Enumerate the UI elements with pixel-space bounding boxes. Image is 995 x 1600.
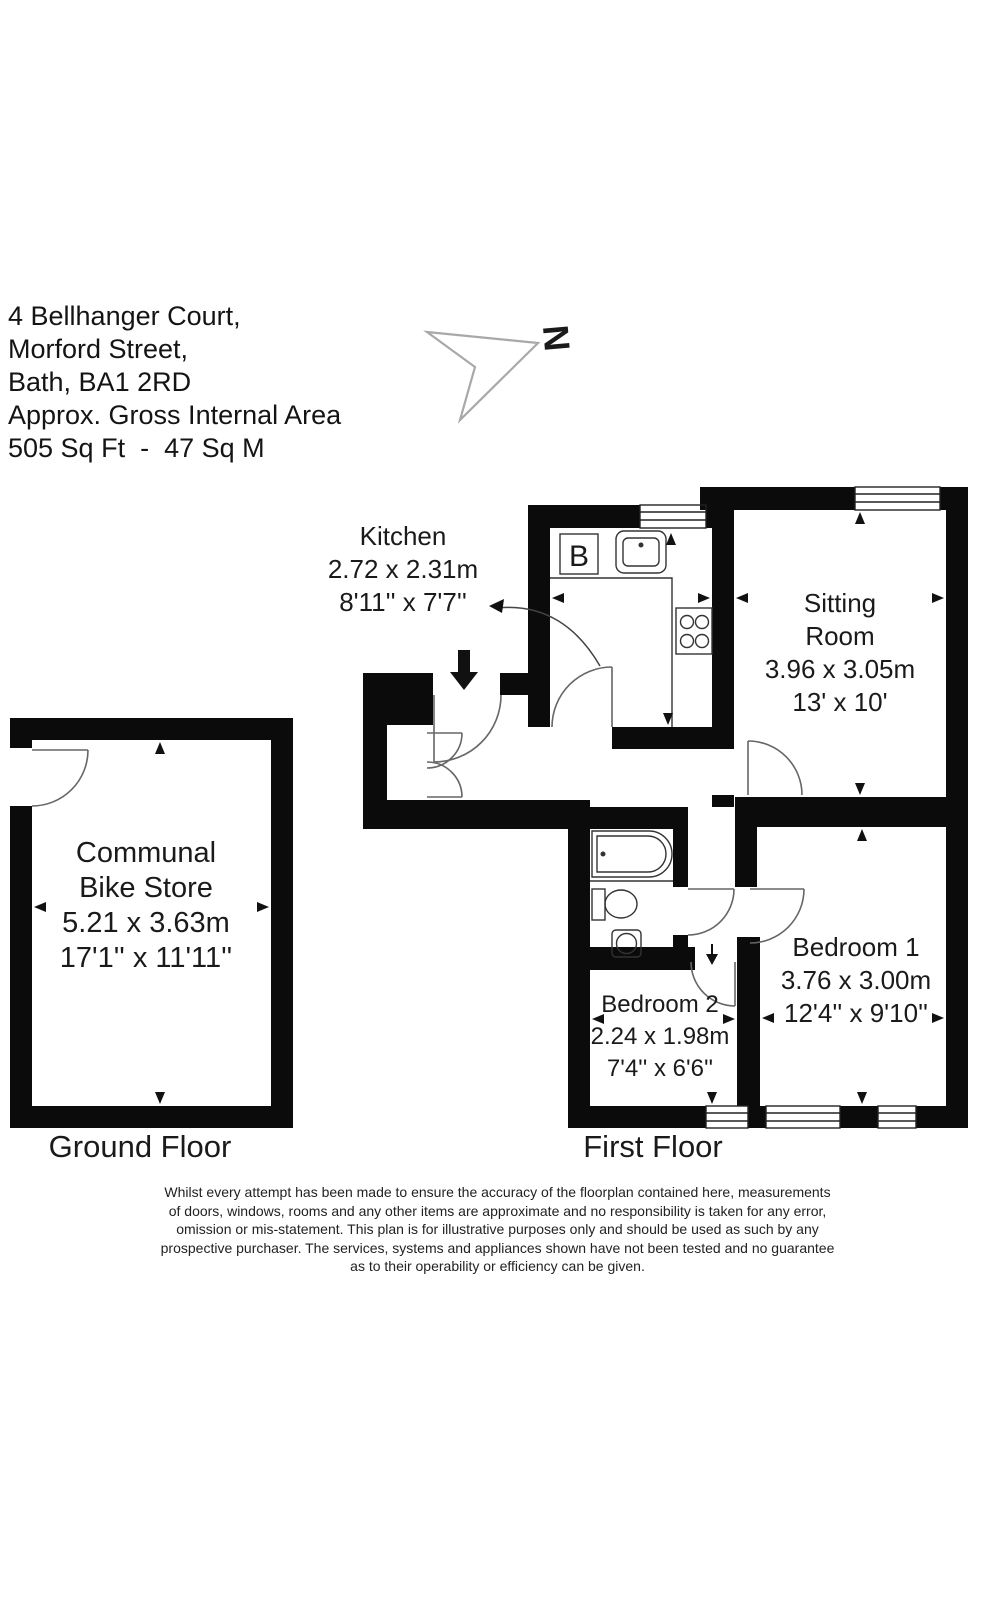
bike-store-label: Communal Bike Store 5.21 x 3.63m 17'1'' … bbox=[60, 837, 232, 974]
first-floor-caption: First Floor bbox=[583, 1129, 723, 1164]
wall-segment bbox=[271, 718, 293, 1128]
kitchen-door bbox=[552, 667, 612, 727]
wall-segment bbox=[500, 673, 528, 695]
wall-segment bbox=[612, 727, 734, 749]
sitting-room-window bbox=[855, 487, 940, 510]
boiler: B bbox=[560, 534, 598, 574]
wall-segment bbox=[568, 1106, 706, 1128]
room-dims-imperial: 7'4'' x 6'6'' bbox=[607, 1055, 713, 1082]
dim-arrow-right bbox=[698, 593, 710, 603]
wall-segment bbox=[568, 947, 695, 970]
wall-segment bbox=[916, 1106, 968, 1128]
dim-arrow-right bbox=[932, 1013, 944, 1023]
floorplan-page: 4 Bellhanger Court, Morford Street, Bath… bbox=[0, 0, 995, 1600]
north-arrow-shape bbox=[427, 332, 538, 420]
wall-segment bbox=[10, 806, 32, 1128]
room-dims-metric: 2.24 x 1.98m bbox=[591, 1023, 730, 1050]
toilet bbox=[592, 889, 637, 920]
bedroom1-window-left bbox=[766, 1106, 840, 1128]
disclaimer-block: Whilst every attempt has been made to en… bbox=[0, 1183, 995, 1276]
dim-arrow-up bbox=[155, 742, 165, 754]
disclaimer-line: omission or mis-statement. This plan is … bbox=[0, 1220, 995, 1239]
bath-tub bbox=[590, 831, 673, 881]
room-dims-metric: 2.72 x 2.31m bbox=[328, 554, 478, 584]
room-dims-imperial: 13' x 10' bbox=[792, 687, 887, 717]
sitting-room-door bbox=[748, 741, 802, 795]
wall-segment bbox=[673, 935, 688, 947]
wall-segment bbox=[737, 937, 760, 1106]
room-name: Bike Store bbox=[79, 872, 213, 904]
dim-arrow-door bbox=[706, 944, 718, 965]
dim-arrow-left bbox=[736, 593, 748, 603]
sitting-room-label: Sitting Room 3.96 x 3.05m 13' x 10' bbox=[765, 588, 915, 717]
dim-arrow-down bbox=[707, 1092, 717, 1104]
dim-arrow-left bbox=[762, 1013, 774, 1023]
entrance-door bbox=[434, 695, 501, 762]
wall-segment bbox=[735, 827, 757, 887]
room-name: Sitting bbox=[804, 588, 876, 618]
kitchen-hob bbox=[676, 608, 712, 654]
dim-arrow-right bbox=[257, 902, 269, 912]
room-dims-metric: 5.21 x 3.63m bbox=[62, 907, 230, 939]
room-dims-imperial: 8'11'' x 7'7'' bbox=[339, 587, 467, 617]
north-arrow-icon: N bbox=[427, 323, 578, 420]
wall-segment bbox=[10, 718, 32, 748]
wall-segment bbox=[363, 800, 590, 829]
kitchen-sink bbox=[616, 531, 666, 573]
room-dims-imperial: 12'4'' x 9'10'' bbox=[784, 998, 928, 1028]
disclaimer-line: as to their operability or efficiency ca… bbox=[0, 1257, 995, 1276]
bedroom1-label: Bedroom 1 3.76 x 3.00m 12'4'' x 9'10'' bbox=[781, 932, 931, 1028]
north-letter: N bbox=[535, 323, 578, 352]
kitchen-label: Kitchen 2.72 x 2.31m 8'11'' x 7'7'' bbox=[328, 521, 478, 617]
ground-floor-plan: Communal Bike Store 5.21 x 3.63m 17'1'' … bbox=[10, 718, 293, 1128]
room-name: Kitchen bbox=[360, 521, 447, 551]
wall-segment bbox=[840, 1106, 878, 1128]
dim-arrow-right bbox=[932, 593, 944, 603]
ground-floor-caption: Ground Floor bbox=[49, 1129, 232, 1164]
bedroom1-window-right bbox=[878, 1106, 916, 1128]
dim-arrow-up bbox=[857, 829, 867, 841]
disclaimer-line: prospective purchaser. The services, sys… bbox=[0, 1239, 995, 1258]
room-dims-metric: 3.96 x 3.05m bbox=[765, 654, 915, 684]
disclaimer-line: of doors, windows, rooms and any other i… bbox=[0, 1202, 995, 1221]
room-name: Bedroom 2 bbox=[601, 991, 718, 1018]
dim-arrow-up bbox=[666, 533, 676, 545]
kitchen-counter bbox=[550, 578, 672, 727]
dim-arrow-down bbox=[855, 783, 865, 795]
wall-segment bbox=[10, 1106, 293, 1128]
room-name: Room bbox=[805, 621, 874, 651]
bedroom2-window bbox=[706, 1106, 748, 1128]
room-dims-imperial: 17'1'' x 11'11'' bbox=[60, 942, 232, 974]
room-name: Communal bbox=[76, 837, 216, 869]
wall-segment bbox=[673, 829, 688, 887]
room-dims-metric: 3.76 x 3.00m bbox=[781, 965, 931, 995]
bedroom2-label: Bedroom 2 2.24 x 1.98m 7'4'' x 6'6'' bbox=[591, 991, 730, 1082]
wall-segment bbox=[712, 795, 734, 807]
bike-store-door bbox=[32, 750, 88, 806]
kitchen-window bbox=[640, 505, 706, 528]
dim-arrow-down bbox=[857, 1092, 867, 1104]
bathroom-door bbox=[688, 889, 734, 935]
room-name: Bedroom 1 bbox=[792, 932, 919, 962]
first-floor-plan: B bbox=[328, 487, 968, 1128]
hall-cupboard-doors bbox=[427, 733, 462, 797]
wall-segment bbox=[748, 1106, 766, 1128]
wall-segment bbox=[568, 807, 688, 829]
wall-segment bbox=[712, 487, 734, 743]
wall-segment bbox=[735, 797, 968, 827]
wall-segment bbox=[10, 718, 293, 740]
floorplan-drawing: N Communal Bike Store 5.21 x 3.63m bbox=[0, 0, 995, 1600]
disclaimer-line: Whilst every attempt has been made to en… bbox=[0, 1183, 995, 1202]
wall-segment bbox=[568, 829, 590, 1128]
wall-segment bbox=[363, 673, 387, 800]
dim-arrow-up bbox=[855, 512, 865, 524]
entrance-arrow-icon bbox=[450, 650, 478, 690]
wall-segment bbox=[528, 505, 550, 727]
dim-arrow-left bbox=[552, 593, 564, 603]
dim-arrow-left bbox=[34, 902, 46, 912]
boiler-label: B bbox=[569, 540, 589, 573]
dim-arrow-down bbox=[155, 1092, 165, 1104]
